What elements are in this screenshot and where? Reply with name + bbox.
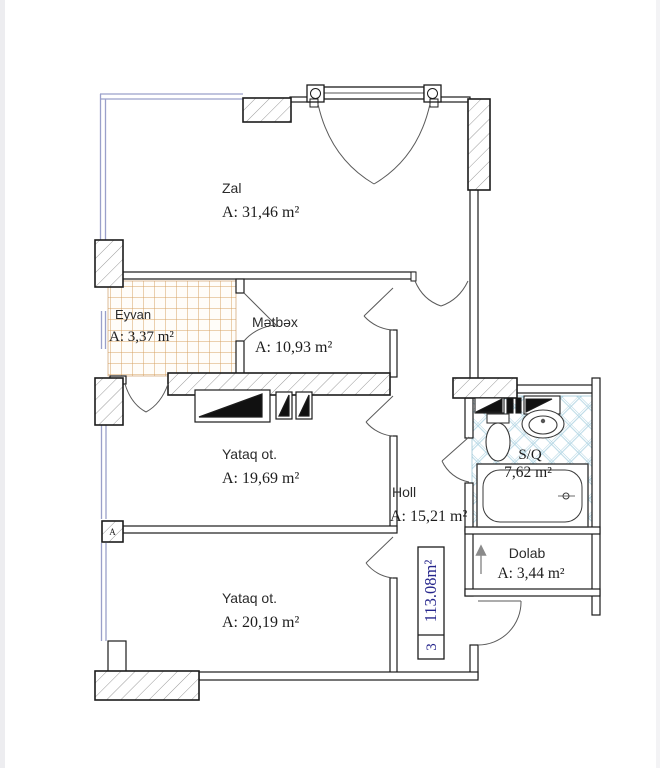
room-area: A: 15,21 m² [390,508,467,525]
room-area: A: 20,19 m² [222,614,299,631]
room-label-dolab: Dolab A: 3,44 m² [497,545,564,582]
room-name: Mətbəx [252,314,298,330]
wall-marker-label: A [109,527,116,537]
room-name: Eyvan [115,307,151,322]
room-name: Yataq ot. [222,590,277,606]
room-label-zal: Zal A: 31,46 m² [222,180,299,221]
room-name: Zal [222,180,241,196]
room-label-metbex: Mətbəx A: 10,93 m² [252,314,332,356]
room-name: Dolab [509,545,546,561]
sink-symbol [522,410,564,438]
room-label-yataq-1: Yataq ot. A: 19,69 m² [222,446,299,487]
room-area: A: 10,93 m² [255,339,332,356]
room-count-label: 3 [424,643,440,651]
room-name: S/Q [518,447,542,463]
room-name: Holl [392,484,416,500]
room-area: A: 19,69 m² [222,470,299,487]
room-area: A: 3,44 m² [497,565,564,582]
room-area: A: 31,46 m² [222,204,299,221]
closet-arrow-icon [477,546,486,574]
floor-plan-page: A [0,0,660,768]
floor-plan: A [0,0,660,768]
unit-info-box: 113.08m² 3 [418,547,444,659]
room-label-holl: Holl A: 15,21 m² [390,484,467,525]
total-area-label: 113.08m² [421,560,440,623]
room-label-yataq-2: Yataq ot. A: 20,19 m² [222,590,299,631]
room-area: 7,62 m² [504,464,552,481]
room-name: Yataq ot. [222,446,277,462]
toilet-symbol [486,414,510,461]
room-area: A: 3,37 m² [109,329,174,345]
balcony-railing [307,85,441,102]
